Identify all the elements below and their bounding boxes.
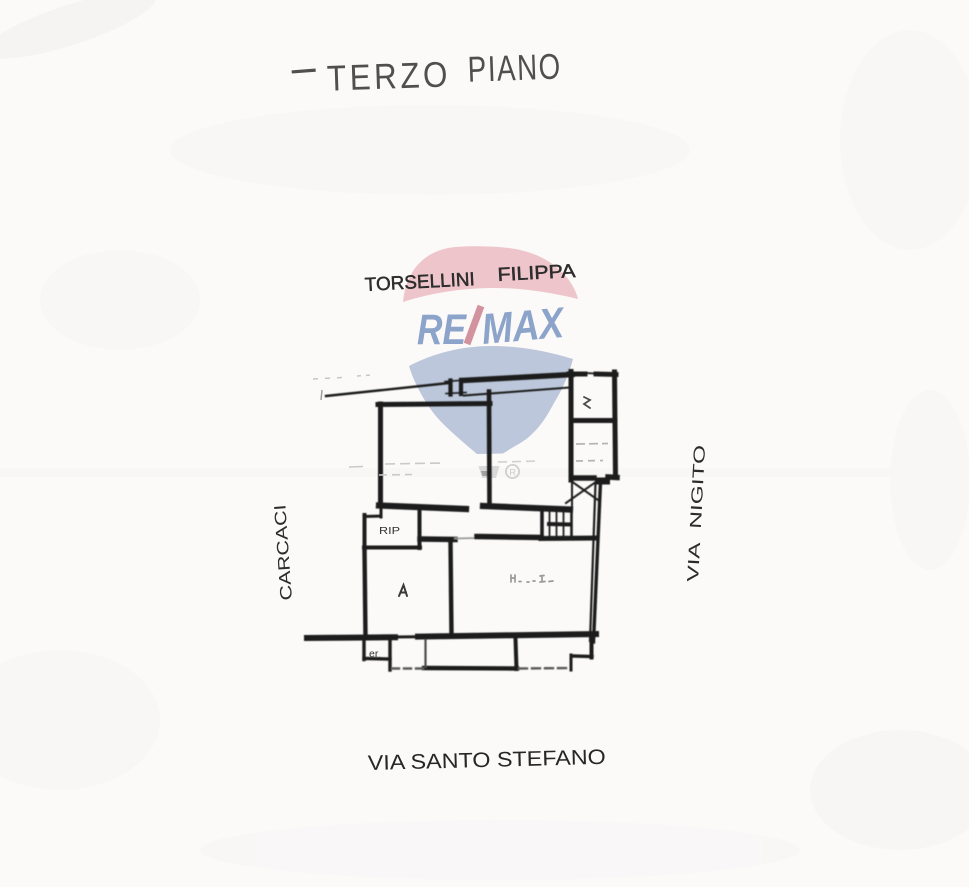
svg-text:TERZO: TERZO (326, 53, 451, 98)
svg-text:PIANO: PIANO (467, 46, 562, 90)
svg-text:RE: RE (417, 306, 467, 354)
svg-text:MAX: MAX (480, 299, 568, 354)
svg-text:RIP: RIP (379, 525, 400, 537)
svg-text:R: R (509, 468, 516, 479)
svg-text:FILIPPA: FILIPPA (497, 261, 576, 286)
svg-text:er: er (369, 648, 379, 660)
